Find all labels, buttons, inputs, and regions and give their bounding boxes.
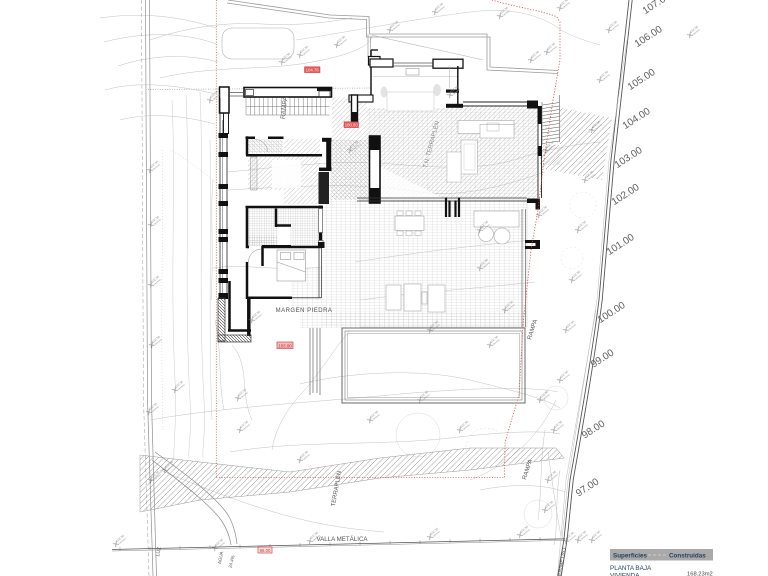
svg-text:Superficies: Superficies: [613, 553, 647, 560]
svg-text:Construidas: Construidas: [669, 553, 706, 560]
svg-text:96.00: 96.00: [260, 548, 271, 553]
svg-text:168.23m2: 168.23m2: [687, 572, 713, 576]
svg-text:VIVIENDA: VIVIENDA: [610, 573, 640, 576]
svg-text:MARGEN PIEDRA: MARGEN PIEDRA: [276, 308, 333, 314]
svg-text:VALLA METÁLICA: VALLA METÁLICA: [316, 536, 368, 543]
svg-text:PLANTA BAJA: PLANTA BAJA: [610, 565, 652, 572]
svg-text:100.00: 100.00: [345, 122, 358, 127]
svg-text:103.00: 103.00: [278, 343, 292, 348]
svg-text:104.76: 104.76: [306, 67, 320, 72]
